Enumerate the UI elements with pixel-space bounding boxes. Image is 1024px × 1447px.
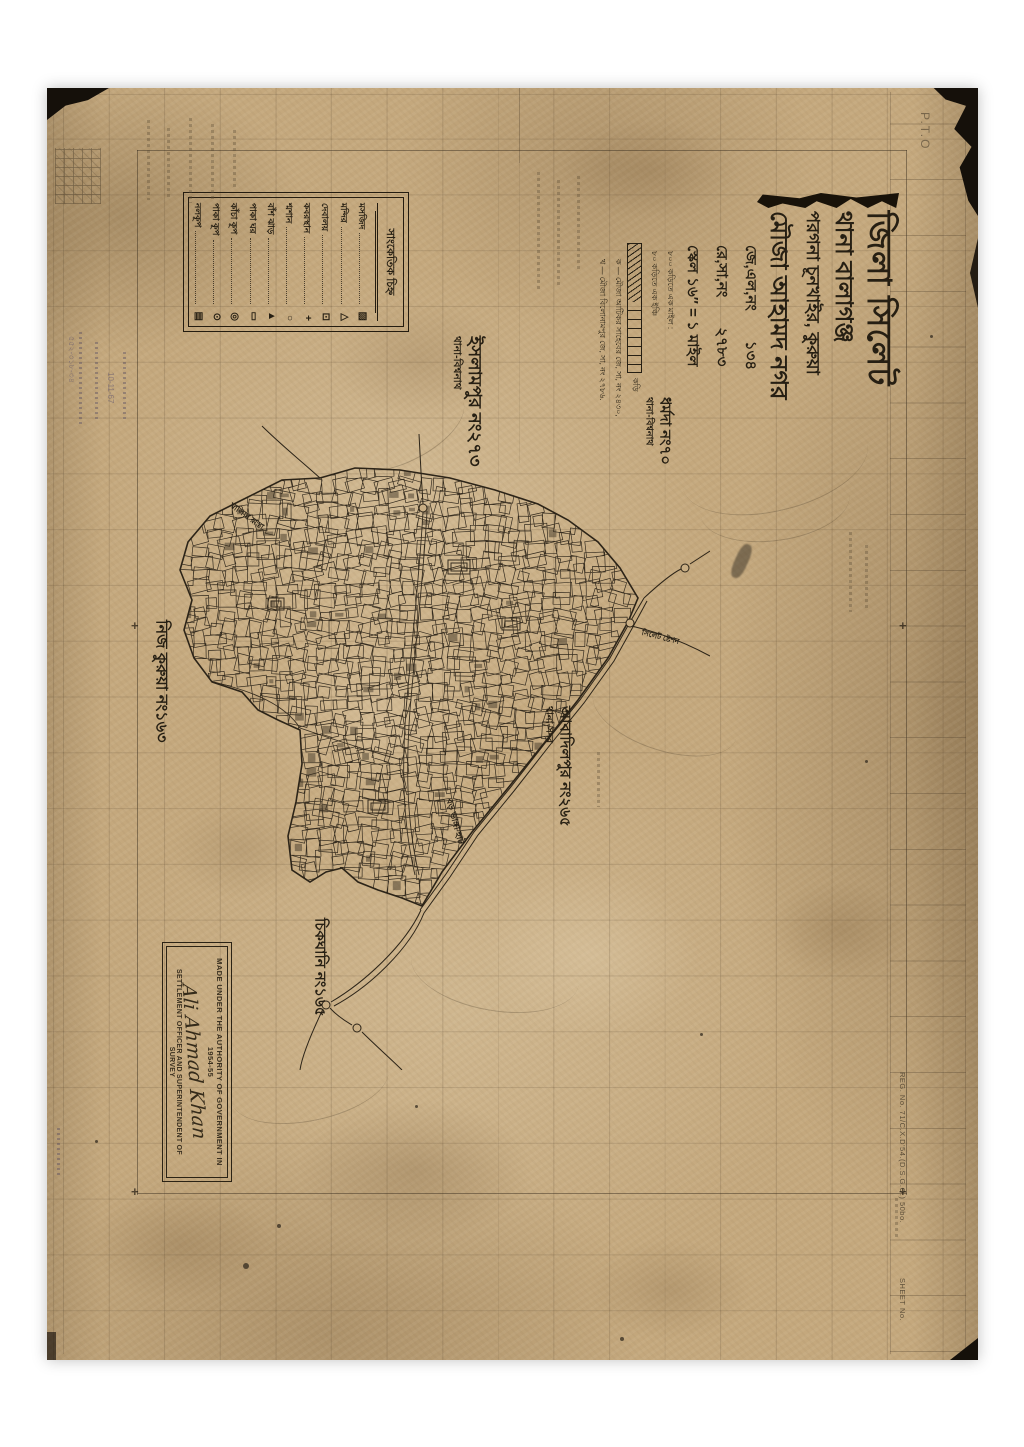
legend-symbol: ▨ (357, 308, 367, 321)
neighbor-label-dharmada: ধর্মদা নং৭০ থানা-বিশ্বনাথ (641, 397, 673, 501)
purple-scribble (95, 342, 98, 422)
legend-leader-dots (286, 227, 287, 304)
neighbor-name: আবাদিলপুর নং২৬৫ (556, 706, 573, 834)
ink-speck (277, 1224, 281, 1228)
rs-label: রে,সা,নং (708, 245, 733, 297)
legend-label: নলকূপ (193, 203, 202, 227)
ink-speck (95, 1140, 98, 1143)
pencil-scribble (557, 180, 560, 285)
pto-stamp: P.T.O (918, 112, 932, 164)
pencil-crosshatch-table (55, 148, 101, 204)
ink-speck (243, 1263, 249, 1269)
neighbor-label-islampur: ইসলামপুর নং২৭৩ থানা-বিশ্বনাথ (447, 336, 484, 478)
neighbor-label-chikghani: চিকঘানি নং১৬৫ (311, 918, 328, 1030)
legend-box: সাংকেতিক চিহ্ন মসজিদ▨ মন্দির△ দেবালয়⊡ ক… (183, 192, 409, 332)
pencil-scribble (849, 532, 852, 612)
margin-rule-left (63, 92, 64, 1354)
legend-symbol: ⊙ (211, 308, 221, 321)
legend-leader-dots (232, 238, 233, 304)
legend-symbol: + (302, 308, 312, 321)
crop-mark: + (899, 1184, 907, 1199)
legend-leader-dots (213, 240, 214, 304)
purple-scribble (57, 1128, 60, 1178)
legend-symbol: △ (339, 308, 349, 321)
frame-line-top (137, 150, 907, 151)
legend-item: মন্দির△ (339, 203, 349, 321)
neighbor-thana: থানা-বিশ্বনাথ (641, 397, 656, 501)
rs-value: ২৭৮৩ (708, 327, 733, 366)
neighbor-name: নিজ কুরুয়া নং১৬৩ (152, 620, 170, 772)
legend-item: মসজিদ▨ (357, 203, 367, 321)
pencil-scribble (189, 118, 192, 203)
crop-mark: + (131, 1184, 139, 1199)
purple-scribble (123, 352, 126, 420)
scanned-map-page: জিলা সিলেট থানা বালাগঞ্জ পরগনা চূনখাইর, … (0, 0, 1024, 1447)
legend-leader-dots (304, 237, 305, 304)
legend-symbol: ⊡ (320, 308, 330, 321)
legend-item: পাকা কূপ⊙ (211, 203, 221, 321)
sheet-number: SHEET No. (898, 1278, 907, 1348)
legend-item: কাঁচা কূপ◎ (230, 203, 240, 321)
legend-label: মসজিদ (357, 203, 366, 229)
crop-mark: + (899, 618, 907, 633)
pencil-scribble (865, 545, 868, 610)
scale-bar-divisions (628, 302, 641, 372)
legend-symbol: ○ (284, 308, 294, 321)
ink-speck (865, 760, 868, 763)
frame-line-bottom (137, 1193, 907, 1194)
ink-speck (930, 335, 933, 338)
neighbor-thana: থানা-সদর (541, 706, 556, 834)
legend-label: পাকা ঘর (248, 203, 257, 234)
legend-leader-dots (322, 235, 323, 304)
legend-symbol: ▤ (193, 308, 203, 321)
legend-leader-dots (268, 238, 269, 304)
scale-bar (627, 243, 642, 373)
purple-scribble (79, 332, 82, 427)
legend-label: কাঁচা কূপ (230, 203, 239, 234)
legend-leader-dots (341, 227, 342, 304)
pencil-scribble (895, 1198, 898, 1238)
legend-item: বাঁশ ঝাড়▲ (266, 203, 276, 321)
legend-label: মন্দির (339, 203, 348, 223)
pencil-scribble (233, 130, 236, 190)
legend-label: কবরস্থান (302, 203, 311, 233)
legend-item: শ্মশান○ (284, 203, 294, 321)
legend-symbol: ▲ (266, 308, 276, 321)
legend-symbol: ▭ (248, 308, 258, 321)
neighbor-label-abadilpur: আবাদিলপুর নং২৬৫ থানা-সদর (541, 706, 573, 834)
neighbor-name: ধর্মদা নং৭০ (656, 397, 673, 501)
pencil-note-2: 10-11-67 (106, 372, 115, 442)
ink-speck (785, 250, 788, 253)
mouza-map-svg (150, 420, 710, 1070)
ink-speck (620, 1337, 624, 1341)
fold-line-faint (519, 163, 520, 463)
jl-label: জে,এল,নং (737, 245, 762, 311)
frame-line-left (137, 150, 138, 1195)
pencil-scribble (167, 128, 170, 198)
legend-leader-dots (359, 233, 360, 304)
pencil-scribble (211, 124, 214, 199)
legend-item: পাকা ঘর▭ (248, 203, 258, 321)
legend-label: শ্মশান (284, 203, 293, 223)
legend-item: দেবালয়⊡ (320, 203, 330, 321)
ink-speck (415, 1105, 418, 1108)
registration-number: REG. No. 71/C.X.D'54.(D.S.G.O.) 50bo. (898, 1072, 907, 1272)
pencil-scribble (537, 172, 540, 292)
legend-header: সাংকেতিক চিহ্ন (377, 203, 399, 321)
neighbor-name: চিকঘানি নং১৬৫ (311, 918, 328, 1030)
neighbor-name: ইসলামপুর নং২৭৩ (464, 336, 484, 478)
legend-item: কবরস্থান+ (302, 203, 312, 321)
legend-leader-dots (195, 231, 196, 304)
pencil-note-1: ৫৫২-৩১৮-৩৪ (64, 336, 77, 446)
pencil-scribble (577, 176, 580, 271)
legend-label: পাকা কূপ (211, 203, 220, 236)
crop-mark: + (131, 618, 139, 633)
fold-line (519, 88, 520, 163)
jl-value: ১৩৪ (737, 341, 762, 370)
neighbor-thana: থানা-বিশ্বনাথ (447, 336, 464, 478)
legend-symbol: ◎ (230, 308, 240, 321)
legend-label: দেবালয় (320, 203, 329, 231)
legend-item: নলকূপ▤ (193, 203, 203, 321)
legend-label: বাঁশ ঝাড় (266, 203, 275, 234)
pencil-scribble (147, 120, 150, 200)
scale-bar-unit: কড়ি (628, 378, 641, 392)
neighbor-label-nij-kurua: নিজ কুরুয়া নং১৬৩ (152, 620, 170, 772)
scale-bar-hatched-section (628, 244, 641, 302)
legend-leader-dots (250, 238, 251, 304)
scan-edge-bottom-left (47, 1332, 56, 1360)
